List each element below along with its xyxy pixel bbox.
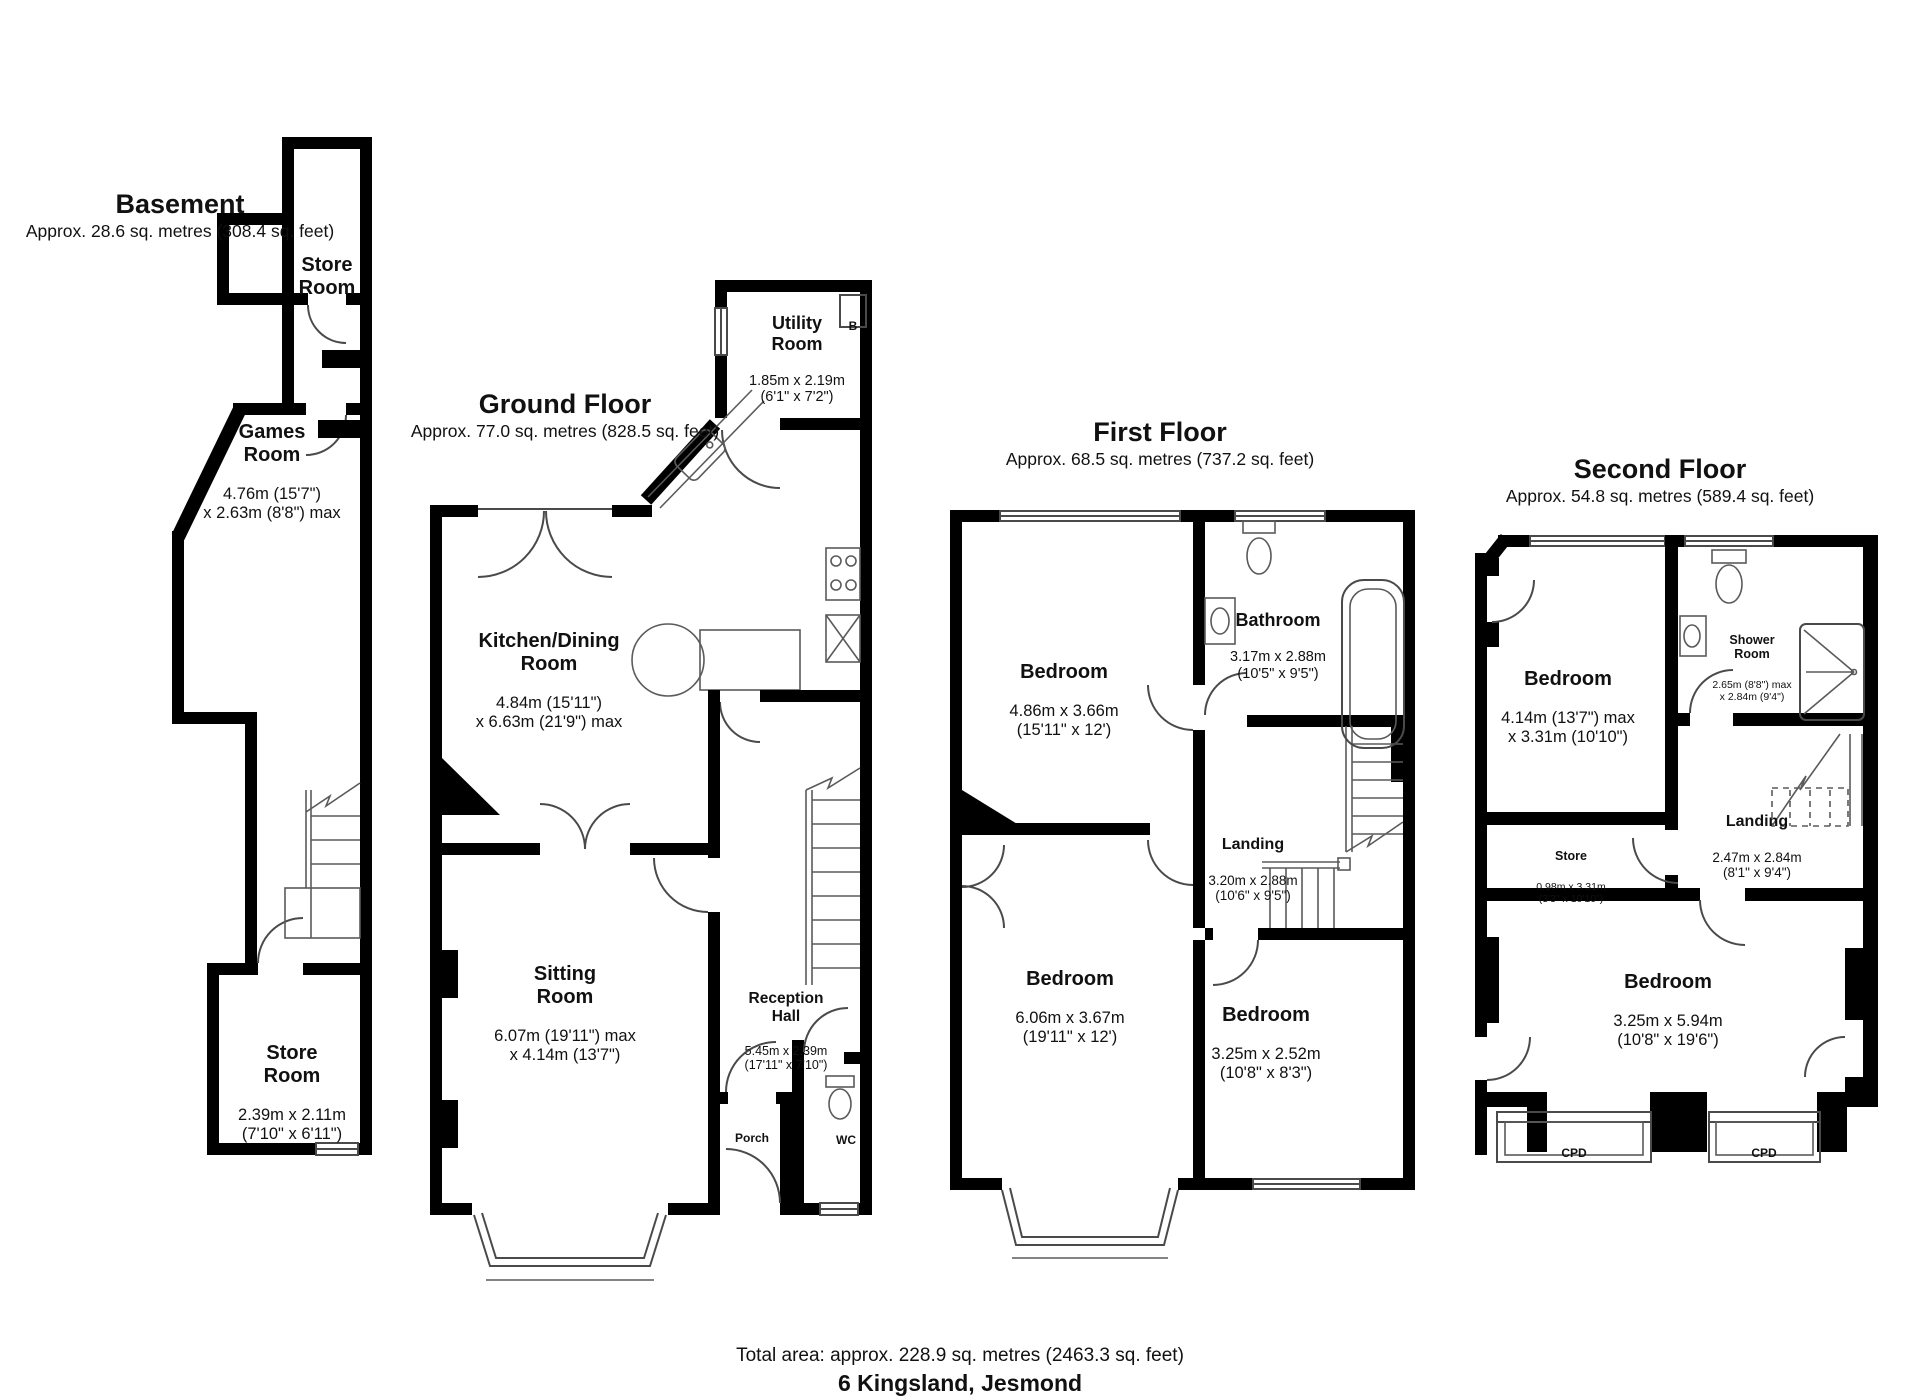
room-label-kitchen-dining: Kitchen/Dining Room 4.84m (15'11") x 6.6… <box>476 612 623 750</box>
room-name: Kitchen/Dining Room <box>476 630 623 676</box>
room-name: Porch <box>735 1132 769 1146</box>
room-label-shower-room: Shower Room 2.65m (8'8") max x 2.84m (9'… <box>1712 615 1791 722</box>
room-dims: 2.47m x 2.84m (8'1" x 9'4") <box>1712 850 1801 881</box>
room-name: Sitting Room <box>494 963 636 1009</box>
room-dims: 0.98m x 3.31m (3'3" x 10'10") <box>1536 882 1605 906</box>
room-dims: 3.25m x 2.52m (10'8" x 8'3") <box>1211 1045 1320 1083</box>
room-name: Bathroom <box>1230 610 1326 631</box>
room-label-store-room-bottom: Store Room 2.39m x 2.11m (7'10" x 6'11") <box>238 1024 346 1162</box>
room-label-landing-second: Landing 2.47m x 2.84m (8'1" x 9'4") <box>1712 795 1801 899</box>
first-bay-window <box>1002 1188 1178 1258</box>
toilet-icon-2 <box>1712 550 1746 603</box>
room-dims: 6.07m (19'11") max x 4.14m (13'7") <box>494 1027 636 1065</box>
toilet-icon <box>1243 521 1275 574</box>
room-label-bedroom-4: Bedroom 4.14m (13'7") max x 3.31m (10'10… <box>1501 650 1635 765</box>
first-floor-title: First Floor Approx. 68.5 sq. metres (737… <box>1006 418 1314 470</box>
room-label-landing-first: Landing 3.20m x 2.88m (10'6" x 9'5") <box>1208 818 1297 922</box>
room-label-sitting-room: Sitting Room 6.07m (19'11") max x 4.14m … <box>494 945 636 1083</box>
room-dims: 3.20m x 2.88m (10'6" x 9'5") <box>1208 873 1297 904</box>
room-dims: 4.86m x 3.66m (15'11" x 12') <box>1009 702 1118 740</box>
room-label-store-second: Store 0.98m x 3.31m (3'3" x 10'10") <box>1536 831 1605 924</box>
room-name: B <box>849 320 858 334</box>
room-name: Landing <box>1208 836 1297 854</box>
first-floor-plan <box>950 510 1415 1258</box>
room-name: Landing <box>1712 813 1801 831</box>
floor-area-text: Approx. 77.0 sq. metres (828.5 sq. feet) <box>411 420 719 443</box>
floor-title-text: First Floor <box>1006 418 1314 448</box>
ground-floor-title: Ground Floor Approx. 77.0 sq. metres (82… <box>411 390 719 442</box>
room-name: Store <box>1536 849 1605 863</box>
floorplan-page: Basement Approx. 28.6 sq. metres (308.4 … <box>0 0 1920 1396</box>
floor-area-text: Approx. 68.5 sq. metres (737.2 sq. feet) <box>1006 448 1314 471</box>
room-name: Games Room <box>203 421 340 467</box>
room-dims: 4.84m (15'11") x 6.63m (21'9") max <box>476 694 623 732</box>
wc-toilet-icon <box>826 1076 854 1119</box>
room-name: CPD <box>1751 1147 1776 1161</box>
room-label-bedroom-2: Bedroom 6.06m x 3.67m (19'11" x 12') <box>1015 950 1124 1065</box>
basement-stairs <box>285 783 360 938</box>
floor-area-text: Approx. 54.8 sq. metres (589.4 sq. feet) <box>1506 485 1814 508</box>
room-label-bedroom-5: Bedroom 3.25m x 5.94m (10'8" x 19'6") <box>1613 953 1722 1068</box>
room-dims: 4.14m (13'7") max x 3.31m (10'10") <box>1501 709 1635 747</box>
room-label-bedroom-1: Bedroom 4.86m x 3.66m (15'11" x 12') <box>1009 643 1118 758</box>
room-label-games-room: Games Room 4.76m (15'7") x 2.63m (8'8") … <box>203 403 340 541</box>
floor-title-text: Ground Floor <box>411 390 719 420</box>
room-name: Bedroom <box>1015 968 1124 991</box>
room-name: Bedroom <box>1613 971 1722 994</box>
cpd-label-1: CPD <box>1561 1129 1586 1179</box>
room-label-utility-room: Utility Room 1.85m x 2.19m (6'1" x 7'2") <box>749 295 845 424</box>
room-label-bathroom: Bathroom 3.17m x 2.88m (10'5" x 9'5") <box>1230 592 1326 700</box>
bay-window <box>474 1213 666 1280</box>
room-name: WC <box>836 1134 856 1148</box>
cpd-label-2: CPD <box>1751 1129 1776 1179</box>
room-name: Utility Room <box>749 313 845 354</box>
floor-title-text: Basement <box>26 190 334 220</box>
room-name: Bedroom <box>1009 661 1118 684</box>
room-dims: 4.76m (15'7") x 2.63m (8'8") max <box>203 485 340 523</box>
stove-icon <box>826 548 860 600</box>
room-name: Shower Room <box>1712 633 1791 662</box>
boiler-label: B <box>849 302 858 352</box>
room-dims: 5.45m x 2.39m (17'11" x 7'10") <box>745 1044 828 1073</box>
sink-icon-2 <box>1680 616 1706 656</box>
room-name: Store Room <box>238 1042 346 1088</box>
room-name: Store Room <box>299 254 356 300</box>
basement-title: Basement Approx. 28.6 sq. metres (308.4 … <box>26 190 334 242</box>
total-area-text: Total area: approx. 228.9 sq. metres (24… <box>0 1345 1920 1367</box>
property-address: 6 Kingsland, Jesmond <box>0 1370 1920 1396</box>
room-label-wc: WC <box>836 1116 856 1166</box>
room-dims: 2.65m (8'8") max x 2.84m (9'4") <box>1712 680 1791 704</box>
room-dims: 6.06m x 3.67m (19'11" x 12') <box>1015 1009 1124 1047</box>
room-dims: 2.39m x 2.11m (7'10" x 6'11") <box>238 1106 346 1144</box>
room-label-store-room-top: Store Room <box>299 236 356 318</box>
room-name: Bedroom <box>1501 668 1635 691</box>
ground-stairs <box>806 768 860 985</box>
round-table <box>632 624 704 696</box>
room-name: CPD <box>1561 1147 1586 1161</box>
floor-area-text: Approx. 28.6 sq. metres (308.4 sq. feet) <box>26 220 334 243</box>
room-dims: 1.85m x 2.19m (6'1" x 7'2") <box>749 373 845 406</box>
room-dims: 3.25m x 5.94m (10'8" x 19'6") <box>1613 1012 1722 1050</box>
room-name: Bedroom <box>1211 1004 1320 1027</box>
shower-icon <box>1800 624 1864 720</box>
room-name: Reception Hall <box>745 990 828 1025</box>
dining-table <box>700 630 800 690</box>
floor-title-text: Second Floor <box>1506 455 1814 485</box>
room-label-porch: Porch <box>735 1114 769 1164</box>
room-dims: 3.17m x 2.88m (10'5" x 9'5") <box>1230 649 1326 682</box>
room-label-bedroom-3: Bedroom 3.25m x 2.52m (10'8" x 8'3") <box>1211 986 1320 1101</box>
room-label-reception-hall: Reception Hall 5.45m x 2.39m (17'11" x 7… <box>745 972 828 1091</box>
second-floor-title: Second Floor Approx. 54.8 sq. metres (58… <box>1506 455 1814 507</box>
larder-icon <box>826 615 860 662</box>
